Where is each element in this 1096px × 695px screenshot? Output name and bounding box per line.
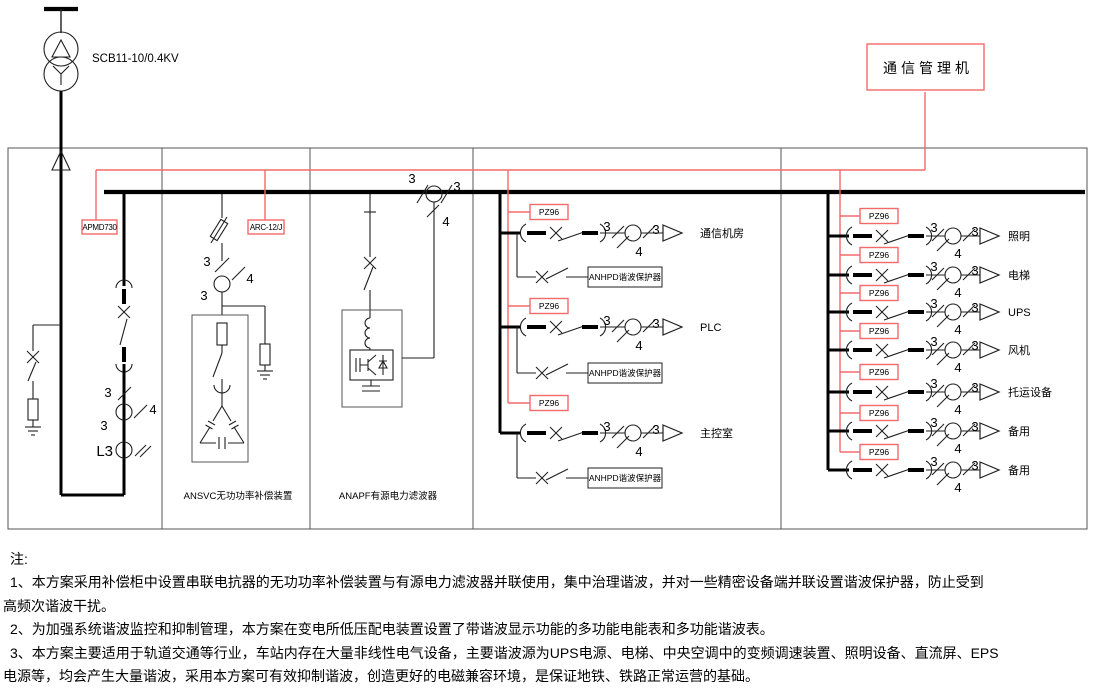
svg-text:PZ96: PZ96 <box>869 211 890 221</box>
meter-apmd730: APMD730 <box>82 220 118 234</box>
svg-text:PZ96: PZ96 <box>539 207 560 217</box>
note-line: 3、本方案主要适用于轨道交通等行业，车站内存在大量非线性电气设备，主要谐波源为U… <box>10 642 999 665</box>
svg-text:3: 3 <box>603 313 610 328</box>
feeder-label: 托运设备 <box>1008 385 1052 399</box>
svg-text:APMD730: APMD730 <box>82 223 117 232</box>
feeder-breaker-icon <box>846 341 931 359</box>
svg-text:3: 3 <box>652 422 659 437</box>
incoming-breaker-icon <box>116 280 132 372</box>
feeder-breaker-icon <box>846 227 931 245</box>
harmonic-protector-label: ANHPD谐波保护器 <box>589 368 662 378</box>
svg-text:L3: L3 <box>96 443 113 460</box>
svg-text:3: 3 <box>971 300 978 315</box>
feeder-label: 电梯 <box>1008 269 1030 282</box>
svc-capacitor-bank-icon <box>200 323 244 449</box>
svg-text:4: 4 <box>954 285 961 300</box>
note-line: 2、为加强系统谐波监控和抑制管理，本方案在变电所低压配电装置设置了带谐波显示功能… <box>10 618 999 641</box>
svg-text:3: 3 <box>971 380 978 395</box>
svg-text:3: 3 <box>930 454 937 469</box>
feeder-meter: PZ96 <box>840 286 898 301</box>
feeder-row: 3 3 4 电梯 <box>828 259 1030 300</box>
svg-text:4: 4 <box>635 244 642 259</box>
svc-label: ANSVC无功功率补偿装置 <box>184 490 293 502</box>
svg-text:3: 3 <box>100 418 107 433</box>
feeder-breaker-icon <box>846 303 931 321</box>
svg-text:3: 3 <box>104 385 111 400</box>
svg-text:4: 4 <box>635 338 642 353</box>
feeder-breaker-icon <box>846 461 931 479</box>
diagram-canvas: SCB11-10/0.4KV 3 <box>0 0 1096 695</box>
svg-text:PZ96: PZ96 <box>869 408 890 418</box>
incoming-feeder: 3 3 4 L3 <box>96 192 156 495</box>
fuse-switch-icon <box>210 217 227 243</box>
incoming-line <box>52 91 124 495</box>
feeder-ct-icon <box>612 225 655 248</box>
delta-winding-icon <box>52 40 70 57</box>
feeder-meter: PZ96 <box>840 209 898 224</box>
feeder-row: 3 3 4 PLC <box>500 313 721 353</box>
svg-text:PZ96: PZ96 <box>869 288 890 298</box>
svg-text:3: 3 <box>930 415 937 430</box>
note-line: 高频次谐波干扰。 <box>3 595 999 618</box>
feeder-label: 备用 <box>1008 424 1030 438</box>
harmonic-protector-branch: ANHPD谐波保护器 <box>517 233 662 287</box>
svg-text:3: 3 <box>930 376 937 391</box>
svg-text:4: 4 <box>954 246 961 261</box>
svg-text:3: 3 <box>971 419 978 434</box>
feeder-breaker-icon <box>846 266 931 284</box>
svg-text:3: 3 <box>453 179 460 194</box>
transformer-label: SCB11-10/0.4KV <box>92 53 179 65</box>
comm-network <box>96 92 925 452</box>
svg-text:PZ96: PZ96 <box>869 326 890 336</box>
feeder-label: PLC <box>700 322 721 334</box>
svg-text:3: 3 <box>930 220 937 235</box>
feeder-meter: PZ96 <box>840 365 898 380</box>
feeder-arrow-icon <box>980 304 999 320</box>
feeder-label: UPS <box>1008 307 1031 319</box>
feeder-arrow-icon <box>663 225 682 241</box>
bus-ct-icon: 3 3 4 <box>402 171 461 358</box>
svg-text:PZ96: PZ96 <box>869 250 890 260</box>
feeder-breaker-icon <box>520 424 605 442</box>
incoming-ct-icon: 3 3 4 <box>100 385 156 433</box>
svg-text:4: 4 <box>954 322 961 337</box>
svg-text:3: 3 <box>652 222 659 237</box>
feeder-row: 3 3 4 通信机房 <box>500 219 744 259</box>
svg-text:3: 3 <box>930 296 937 311</box>
svg-text:3: 3 <box>203 254 210 269</box>
svg-text:4: 4 <box>954 360 961 375</box>
svc-ct-icon: 3 3 4 <box>200 254 253 303</box>
feeder-row: 3 3 4 备用 <box>828 454 1030 495</box>
feeder-arrow-icon <box>663 425 682 441</box>
svg-text:4: 4 <box>149 402 156 417</box>
feeder-label: 主控室 <box>700 426 733 440</box>
notes: 注: 1、本方案采用补偿柜中设置串联电抗器的无功功率补偿装置与有源电力滤波器并联… <box>10 548 999 688</box>
comm-manager-box: 通信管理机 <box>867 44 984 90</box>
note-heading: 注: <box>10 548 999 571</box>
svg-text:PZ96: PZ96 <box>539 301 560 311</box>
feeder-label: 通信机房 <box>700 226 744 240</box>
harmonic-protector-label: ANHPD谐波保护器 <box>589 473 662 483</box>
feeder-breaker-icon <box>520 318 605 336</box>
feeder-meter: PZ96 <box>840 445 898 460</box>
controller-arc12j: ARC-12/J <box>248 220 284 234</box>
feeder-meter: PZ96 <box>508 396 568 411</box>
feeder-arrow-icon <box>980 384 999 400</box>
pt-branch <box>25 325 61 435</box>
svg-text:PZ96: PZ96 <box>539 398 560 408</box>
apf-label: ANAPF有源电力滤波器 <box>339 490 438 502</box>
feeder-label: 风机 <box>1008 343 1030 357</box>
note-line: 1、本方案采用补偿柜中设置串联电抗器的无功功率补偿装置与有源电力滤波器并联使用，… <box>10 571 999 594</box>
feeder-arrow-icon <box>980 342 999 358</box>
svg-text:通信管理机: 通信管理机 <box>883 60 973 76</box>
svg-text:3: 3 <box>971 224 978 239</box>
svg-text:3: 3 <box>652 316 659 331</box>
feeder-row: 3 3 4 备用 <box>828 415 1030 456</box>
ground-icon <box>25 427 41 435</box>
svg-text:3: 3 <box>603 419 610 434</box>
svg-text:PZ96: PZ96 <box>869 367 890 377</box>
note-line: 电源等，均会产生大量谐波，采用本方案可有效抑制谐波，创造更好的电磁兼容环境，是保… <box>3 665 999 688</box>
apf-igbt-icon <box>350 350 393 391</box>
feeder-label: 备用 <box>1008 463 1030 477</box>
apf-section: 3 3 4 ANAPF有源电力滤波器 <box>339 171 461 502</box>
svg-text:3: 3 <box>930 334 937 349</box>
svg-text:3: 3 <box>971 263 978 278</box>
svg-text:4: 4 <box>246 271 253 286</box>
svg-text:ARC-12/J: ARC-12/J <box>250 223 283 232</box>
svg-text:4: 4 <box>954 441 961 456</box>
svg-text:4: 4 <box>954 480 961 495</box>
feeder-breaker-icon <box>846 422 931 440</box>
harmonic-protector-branch: ANHPD谐波保护器 <box>517 327 662 383</box>
svg-text:4: 4 <box>635 444 642 459</box>
svg-text:3: 3 <box>971 338 978 353</box>
ground-icon <box>257 371 273 379</box>
feeder-arrow-icon <box>980 462 999 478</box>
svg-text:3: 3 <box>603 219 610 234</box>
reactor-coil-icon <box>365 318 370 348</box>
svg-text:4: 4 <box>954 402 961 417</box>
feeder-arrow-icon <box>663 319 682 335</box>
feeder-meter: PZ96 <box>508 299 568 314</box>
feeder-row: 3 3 4 主控室 <box>500 419 733 459</box>
svc-section: 3 3 4 ANSVC无功功率补偿装置 <box>184 194 293 502</box>
feeder-arrow-icon <box>980 423 999 439</box>
feeder-ct-icon <box>612 425 655 448</box>
svg-text:3: 3 <box>408 171 415 186</box>
harmonic-protector-label: ANHPD谐波保护器 <box>589 272 662 282</box>
svg-text:3: 3 <box>971 458 978 473</box>
feeder-arrow-icon <box>980 267 999 283</box>
harmonic-protector-branch: ANHPD谐波保护器 <box>517 433 662 488</box>
svg-text:3: 3 <box>200 288 207 303</box>
feeder-meter: PZ96 <box>840 248 898 263</box>
wye-winding-icon <box>53 66 69 85</box>
apf-switch-icon <box>364 257 376 290</box>
svc-cabinet-box <box>192 315 248 462</box>
svg-text:4: 4 <box>442 214 449 229</box>
feeder-arrow-icon <box>980 228 999 244</box>
transformer-icon <box>44 9 78 91</box>
feeder-row: 3 3 4 风机 <box>828 334 1030 375</box>
feeder-meter: PZ96 <box>840 406 898 421</box>
feeder-ct-icon <box>612 319 655 342</box>
svg-text:PZ96: PZ96 <box>869 447 890 457</box>
feeder-breaker-icon <box>520 224 605 242</box>
feeder-label: 照明 <box>1008 230 1030 243</box>
feeder-meter: PZ96 <box>508 205 568 220</box>
svg-text:3: 3 <box>930 259 937 274</box>
feeder-breaker-icon <box>846 383 931 401</box>
feeder-meter: PZ96 <box>840 324 898 339</box>
